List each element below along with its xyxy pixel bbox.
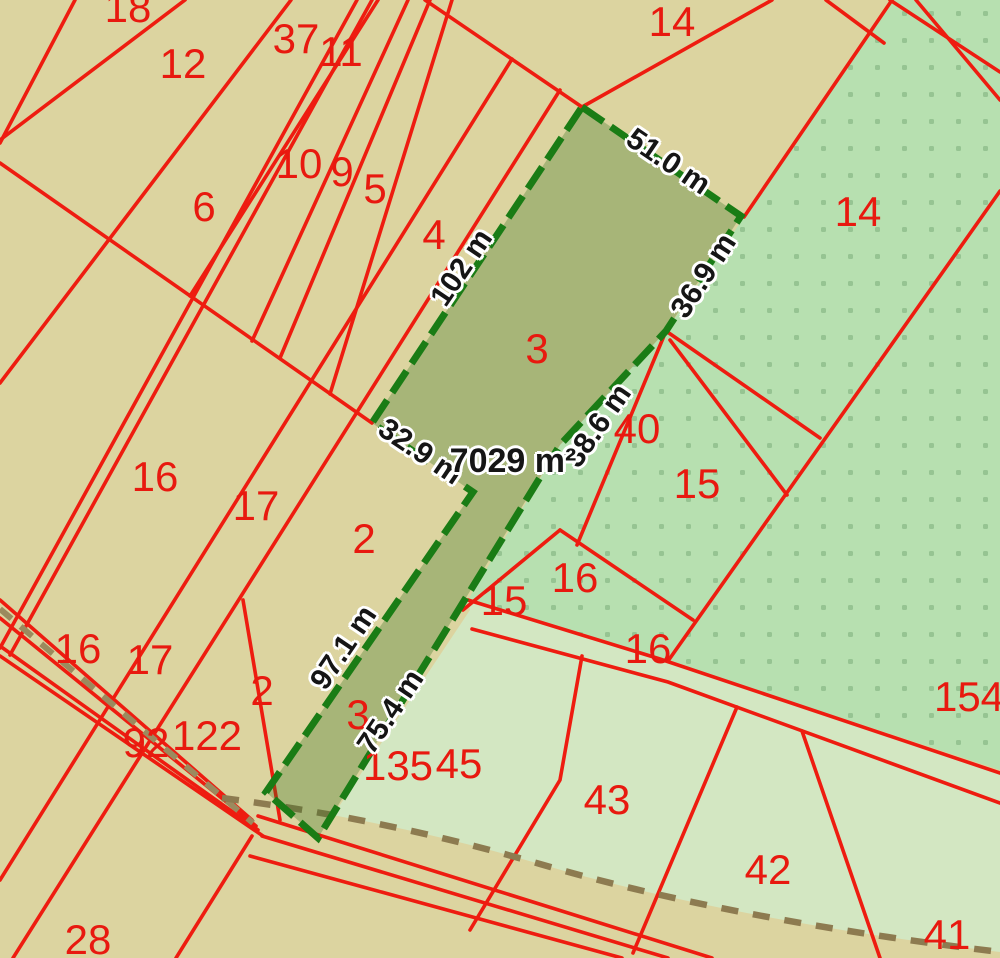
map-viewport[interactable]: 1812371114610954314401516172161617292122… — [0, 0, 1000, 958]
map-basemap — [0, 0, 1000, 958]
